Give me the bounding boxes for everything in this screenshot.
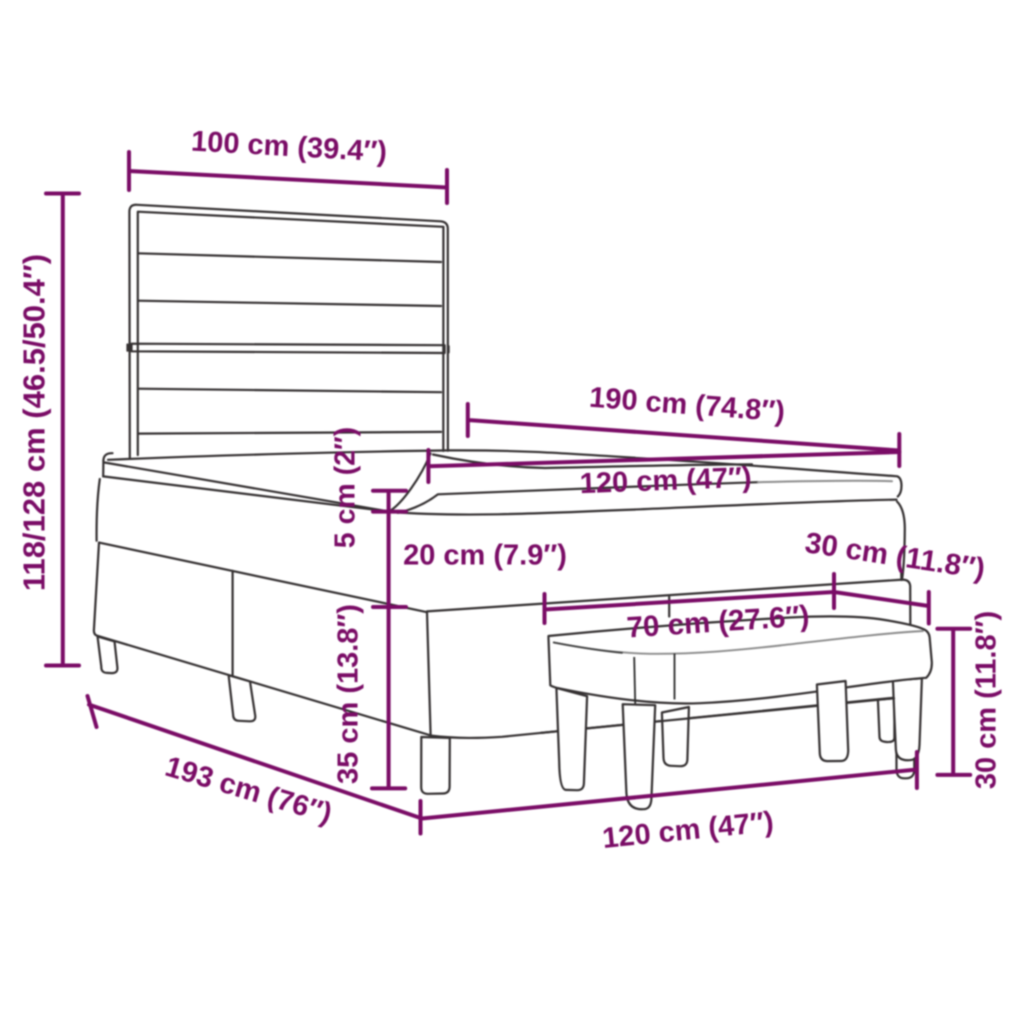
svg-text:118/128 cm (46.5/50.4″): 118/128 cm (46.5/50.4″) <box>17 254 52 591</box>
svg-text:20 cm (7.9″): 20 cm (7.9″) <box>403 540 567 572</box>
svg-text:35 cm (13.8″): 35 cm (13.8″) <box>333 604 365 784</box>
svg-text:5 cm (2″): 5 cm (2″) <box>330 427 362 548</box>
svg-text:30 cm (11.8″): 30 cm (11.8″) <box>971 611 1003 789</box>
svg-text:120 cm (47″): 120 cm (47″) <box>579 462 752 501</box>
